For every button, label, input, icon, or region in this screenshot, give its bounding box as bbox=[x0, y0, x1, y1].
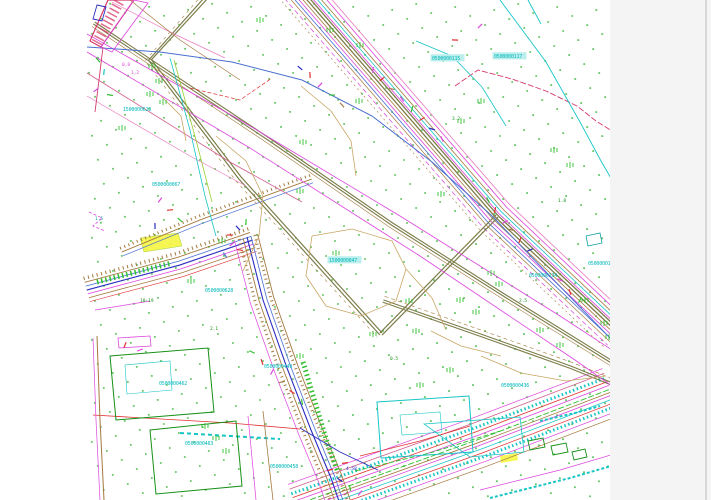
magenta-rect-bl bbox=[118, 336, 151, 348]
cad-map-viewer: 0,81,210-194.582.51.83.21.52.10.50500000… bbox=[0, 0, 711, 500]
svg-text:1500000629: 1500000629 bbox=[123, 107, 151, 113]
svg-text:0500000449: 0500000449 bbox=[264, 364, 292, 370]
contour-1 bbox=[306, 229, 406, 316]
hedge-vertical bbox=[303, 362, 338, 472]
svg-text:1500000047: 1500000047 bbox=[329, 258, 357, 264]
svg-text:0500000134: 0500000134 bbox=[529, 273, 557, 279]
green-rect-3 bbox=[572, 449, 587, 460]
crimson-zig bbox=[95, 47, 103, 112]
olive-track-long bbox=[92, 22, 610, 365]
parcel-label: 0500000628 bbox=[205, 288, 233, 294]
svg-text:10-19: 10-19 bbox=[140, 298, 154, 304]
viewer-margin-divider bbox=[705, 0, 707, 500]
parcel-labels: 0500000067050000062815000006290500000115… bbox=[123, 52, 610, 470]
green-dash-br bbox=[355, 431, 500, 471]
left-vertical-1 bbox=[97, 336, 104, 500]
svg-text:0500000115: 0500000115 bbox=[432, 56, 460, 62]
cyan-dash-bl bbox=[180, 433, 280, 439]
svg-text:0.5: 0.5 bbox=[390, 356, 398, 362]
svg-text:0500000628: 0500000628 bbox=[205, 288, 233, 294]
parcel-label: 0500000117 bbox=[493, 52, 527, 60]
parcel-label: 0500000115 bbox=[431, 54, 465, 62]
svg-text:0500000436: 0500000436 bbox=[501, 383, 529, 389]
svg-text:0500000462: 0500000462 bbox=[159, 381, 187, 387]
parcel-label: 0500000133 bbox=[588, 261, 610, 267]
svg-text:4.58: 4.58 bbox=[346, 466, 357, 472]
parcel-south-edge bbox=[380, 215, 498, 335]
svg-text:2.1: 2.1 bbox=[210, 326, 218, 332]
green-rect-2 bbox=[551, 443, 568, 455]
svg-text:0500000117: 0500000117 bbox=[494, 54, 522, 60]
teal-rect-r bbox=[586, 233, 602, 246]
map-canvas: 0,81,210-194.582.51.83.21.52.10.50500000… bbox=[0, 0, 610, 500]
svg-text:0500000463: 0500000463 bbox=[185, 441, 213, 447]
svg-text:0500000458: 0500000458 bbox=[270, 464, 298, 470]
parcel-label: 0500000067 bbox=[152, 182, 180, 188]
parcel-label: 0500000458 bbox=[270, 464, 298, 470]
parcel-label: 1500000047 bbox=[328, 256, 362, 264]
magenta-long-2 bbox=[87, 52, 610, 386]
cyan-line-1 bbox=[500, 0, 610, 180]
svg-text:1,2: 1,2 bbox=[131, 70, 139, 76]
hedge-west bbox=[97, 263, 172, 282]
left-vertical-2 bbox=[93, 338, 100, 500]
svg-text:0500000067: 0500000067 bbox=[152, 182, 180, 188]
magenta-v-bl bbox=[248, 416, 256, 500]
parcel-label: 0500000463 bbox=[185, 441, 213, 447]
svg-text:1.8: 1.8 bbox=[558, 198, 566, 204]
building-1-inner bbox=[125, 361, 172, 394]
viewer-right-margin bbox=[610, 0, 711, 500]
parcel-label: 1500000629 bbox=[123, 107, 151, 113]
svg-text:3.2: 3.2 bbox=[452, 116, 460, 122]
parcel-label: 0500000134 bbox=[529, 273, 557, 279]
cyan-line-2 bbox=[528, 0, 541, 24]
red-line-bl bbox=[93, 415, 300, 429]
parcel-label: 0500000436 bbox=[501, 383, 529, 389]
svg-text:0,8: 0,8 bbox=[122, 62, 130, 68]
svg-text:0500000133: 0500000133 bbox=[588, 261, 610, 267]
parcel-label: 0500000449 bbox=[264, 364, 292, 370]
contour-5 bbox=[431, 331, 501, 356]
contour-3 bbox=[301, 86, 356, 176]
parcel-label: 0500000462 bbox=[159, 381, 187, 387]
brown-tl bbox=[130, 0, 240, 80]
svg-text:2.5: 2.5 bbox=[519, 298, 527, 304]
dblue-bl-junction bbox=[300, 428, 378, 470]
svg-text:1.5: 1.5 bbox=[95, 216, 103, 222]
building-2 bbox=[150, 421, 242, 494]
